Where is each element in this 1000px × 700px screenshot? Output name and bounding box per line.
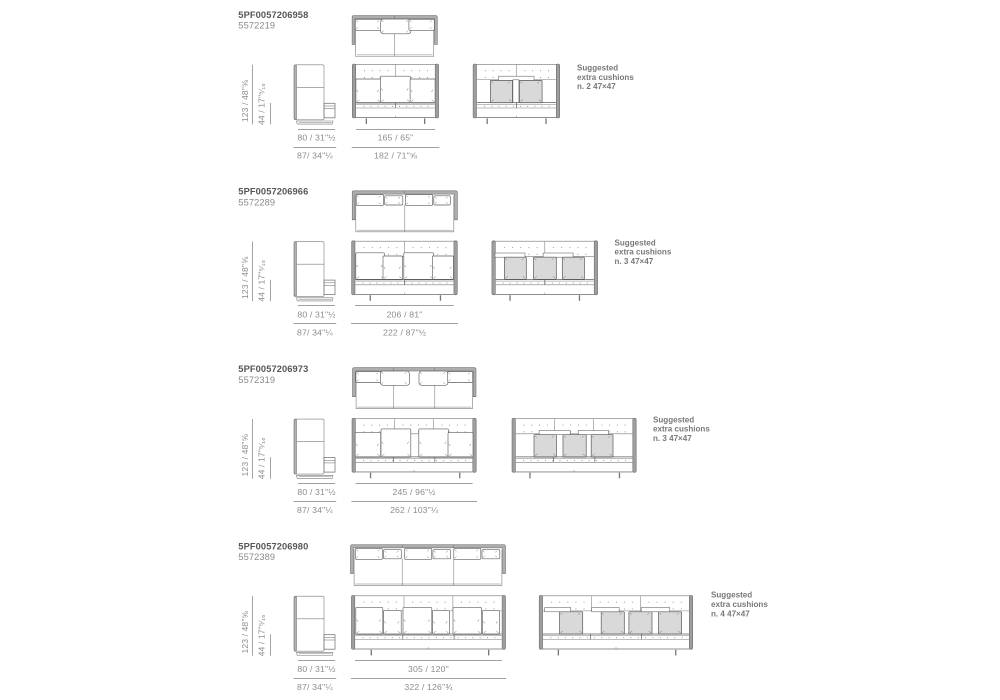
svg-text:222 / 87"½: 222 / 87"½	[383, 328, 427, 338]
svg-text:44 / 17"⁵⁄₁₆: 44 / 17"⁵⁄₁₆	[256, 437, 266, 479]
svg-text:80 / 31"½: 80 / 31"½	[297, 487, 336, 497]
svg-text:Suggested: Suggested	[653, 415, 694, 424]
svg-text:123 / 48"⅝: 123 / 48"⅝	[240, 611, 250, 654]
svg-text:n. 3 47×47: n. 3 47×47	[615, 257, 654, 266]
svg-text:5572319: 5572319	[238, 375, 275, 385]
svg-text:5PF0057206973: 5PF0057206973	[238, 364, 308, 374]
svg-text:n. 4 47×47: n. 4 47×47	[711, 609, 750, 618]
svg-text:Suggested: Suggested	[615, 238, 656, 247]
svg-text:80 / 31"½: 80 / 31"½	[297, 664, 336, 674]
svg-text:5PF0057206980: 5PF0057206980	[238, 541, 308, 551]
svg-text:extra cushions: extra cushions	[577, 73, 634, 82]
svg-text:87/ 34"¼: 87/ 34"¼	[297, 328, 333, 338]
svg-text:n. 3 47×47: n. 3 47×47	[653, 434, 692, 443]
svg-text:44 / 17"⁵⁄₁₆: 44 / 17"⁵⁄₁₆	[256, 260, 266, 302]
svg-text:87/ 34"¼: 87/ 34"¼	[297, 682, 333, 692]
svg-text:165 / 65": 165 / 65"	[378, 133, 414, 143]
svg-text:123 / 48"⅝: 123 / 48"⅝	[240, 79, 250, 122]
svg-text:5572219: 5572219	[238, 21, 275, 31]
svg-text:182 / 71"⅝: 182 / 71"⅝	[374, 151, 418, 161]
svg-text:44 / 17"⁵⁄₁₆: 44 / 17"⁵⁄₁₆	[256, 614, 266, 656]
svg-text:extra cushions: extra cushions	[711, 600, 768, 609]
svg-text:5PF0057206958: 5PF0057206958	[238, 10, 308, 20]
svg-text:206 / 81": 206 / 81"	[387, 310, 423, 320]
svg-text:Suggested: Suggested	[711, 591, 752, 600]
svg-text:80 / 31"½: 80 / 31"½	[297, 133, 336, 143]
svg-text:n. 2 47×47: n. 2 47×47	[577, 82, 616, 91]
svg-text:245 / 96"½: 245 / 96"½	[392, 487, 436, 497]
svg-text:5PF0057206966: 5PF0057206966	[238, 187, 308, 197]
svg-text:extra cushions: extra cushions	[653, 425, 710, 434]
svg-text:123 / 48"⅝: 123 / 48"⅝	[240, 433, 250, 476]
svg-text:322 / 126"¾: 322 / 126"¾	[404, 682, 453, 692]
svg-text:262 / 103"¼: 262 / 103"¼	[390, 505, 439, 515]
svg-text:87/ 34"¼: 87/ 34"¼	[297, 151, 333, 161]
svg-text:305 / 120": 305 / 120"	[408, 664, 449, 674]
svg-text:5572389: 5572389	[238, 552, 275, 562]
svg-text:87/ 34"¼: 87/ 34"¼	[297, 505, 333, 515]
svg-text:44 / 17"⁵⁄₁₆: 44 / 17"⁵⁄₁₆	[256, 83, 266, 125]
svg-text:extra cushions: extra cushions	[615, 248, 672, 257]
svg-text:80 / 31"½: 80 / 31"½	[297, 310, 336, 320]
svg-text:Suggested: Suggested	[577, 64, 618, 73]
svg-text:5572289: 5572289	[238, 197, 275, 207]
svg-text:123 / 48"⅝: 123 / 48"⅝	[240, 256, 250, 299]
